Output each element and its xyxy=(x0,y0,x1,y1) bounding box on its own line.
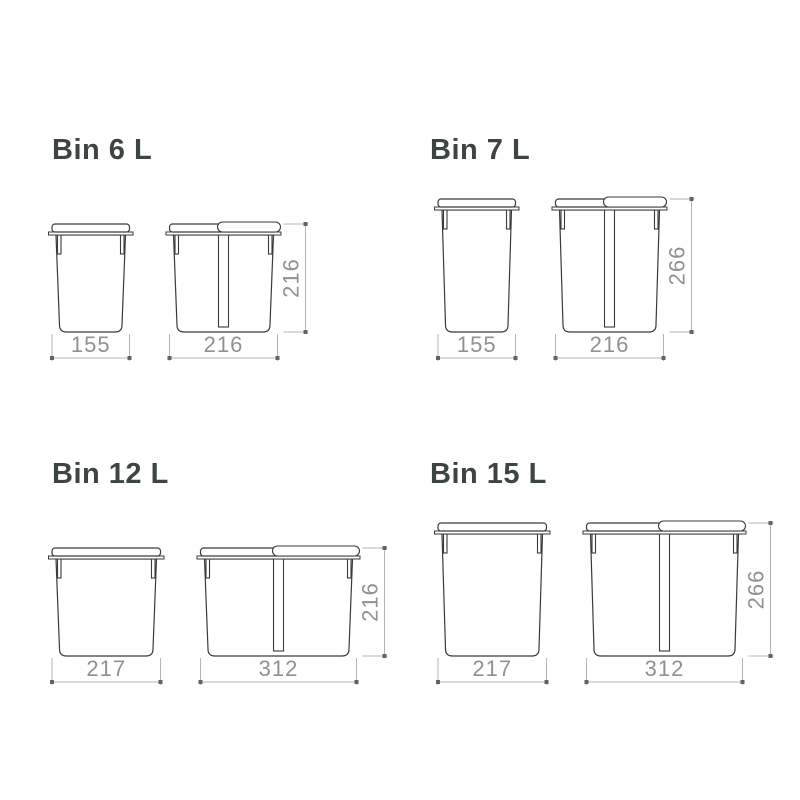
bin-technical-drawing: 217312266 xyxy=(400,324,800,744)
bin-front-view-body xyxy=(442,210,512,332)
lid-handle xyxy=(604,197,667,207)
dimension-dot xyxy=(545,680,549,684)
width-dimension: 312 xyxy=(199,656,359,685)
lid-handle xyxy=(659,521,746,531)
lid-cap xyxy=(52,224,130,232)
dimension-dot xyxy=(690,197,694,201)
left-clip xyxy=(58,235,62,254)
dimension-label: 312 xyxy=(259,656,299,681)
dimension-dot xyxy=(741,680,745,684)
dimension-dot xyxy=(159,680,163,684)
dimension-label: 217 xyxy=(86,656,126,681)
dimension-dot xyxy=(585,680,589,684)
lid-cap xyxy=(438,523,547,531)
dimension-label: 266 xyxy=(744,570,769,610)
right-clip xyxy=(734,534,738,553)
dimension-dot xyxy=(769,654,773,658)
width-dimension: 312 xyxy=(585,656,745,685)
dimension-dot xyxy=(769,521,773,525)
handle-strip xyxy=(219,235,229,327)
right-clip xyxy=(655,210,659,229)
height-dimension: 216 xyxy=(358,546,388,658)
left-clip xyxy=(175,235,179,254)
right-clip xyxy=(507,210,511,229)
dimension-dot xyxy=(304,222,308,226)
lid-cap xyxy=(438,199,516,207)
right-clip xyxy=(538,534,542,553)
dimension-diagram-page: Bin 6 L 155216216 Bin 7 L 155216266 Bin … xyxy=(0,0,800,800)
dimension-label: 216 xyxy=(358,582,383,622)
right-clip xyxy=(152,559,156,578)
height-dimension: 266 xyxy=(665,197,695,334)
handle-strip xyxy=(660,534,670,651)
left-clip xyxy=(206,559,210,578)
left-clip xyxy=(58,559,62,578)
dimension-dot xyxy=(383,546,387,550)
bin-front-view-body xyxy=(56,559,157,656)
dimension-label: 217 xyxy=(472,656,512,681)
bin-technical-drawing: 217312216 xyxy=(0,324,400,744)
lid-cap xyxy=(52,548,161,556)
width-dimension: 217 xyxy=(436,656,549,685)
height-dimension: 216 xyxy=(279,222,309,334)
dimension-label: 266 xyxy=(665,246,690,286)
dimension-dot xyxy=(50,680,54,684)
panel-bin-12l: Bin 12 L 217312216 xyxy=(0,324,400,800)
dimension-dot xyxy=(436,680,440,684)
left-clip xyxy=(561,210,565,229)
dimension-label: 216 xyxy=(279,258,304,298)
lid-handle xyxy=(273,546,360,556)
height-dimension: 266 xyxy=(744,521,774,658)
lid-handle xyxy=(218,222,281,232)
bin-front-view-body xyxy=(442,534,543,656)
left-clip xyxy=(444,534,448,553)
dimension-dot xyxy=(355,680,359,684)
handle-strip xyxy=(274,559,284,651)
right-clip xyxy=(269,235,273,254)
left-clip xyxy=(592,534,596,553)
right-clip xyxy=(348,559,352,578)
left-clip xyxy=(444,210,448,229)
panel-bin-15l: Bin 15 L 217312266 xyxy=(400,324,800,800)
dimension-dot xyxy=(383,654,387,658)
dimension-dot xyxy=(199,680,203,684)
dimension-label: 312 xyxy=(645,656,685,681)
bin-front-view-body xyxy=(56,235,126,332)
handle-strip xyxy=(605,210,615,327)
right-clip xyxy=(121,235,125,254)
width-dimension: 217 xyxy=(50,656,163,685)
